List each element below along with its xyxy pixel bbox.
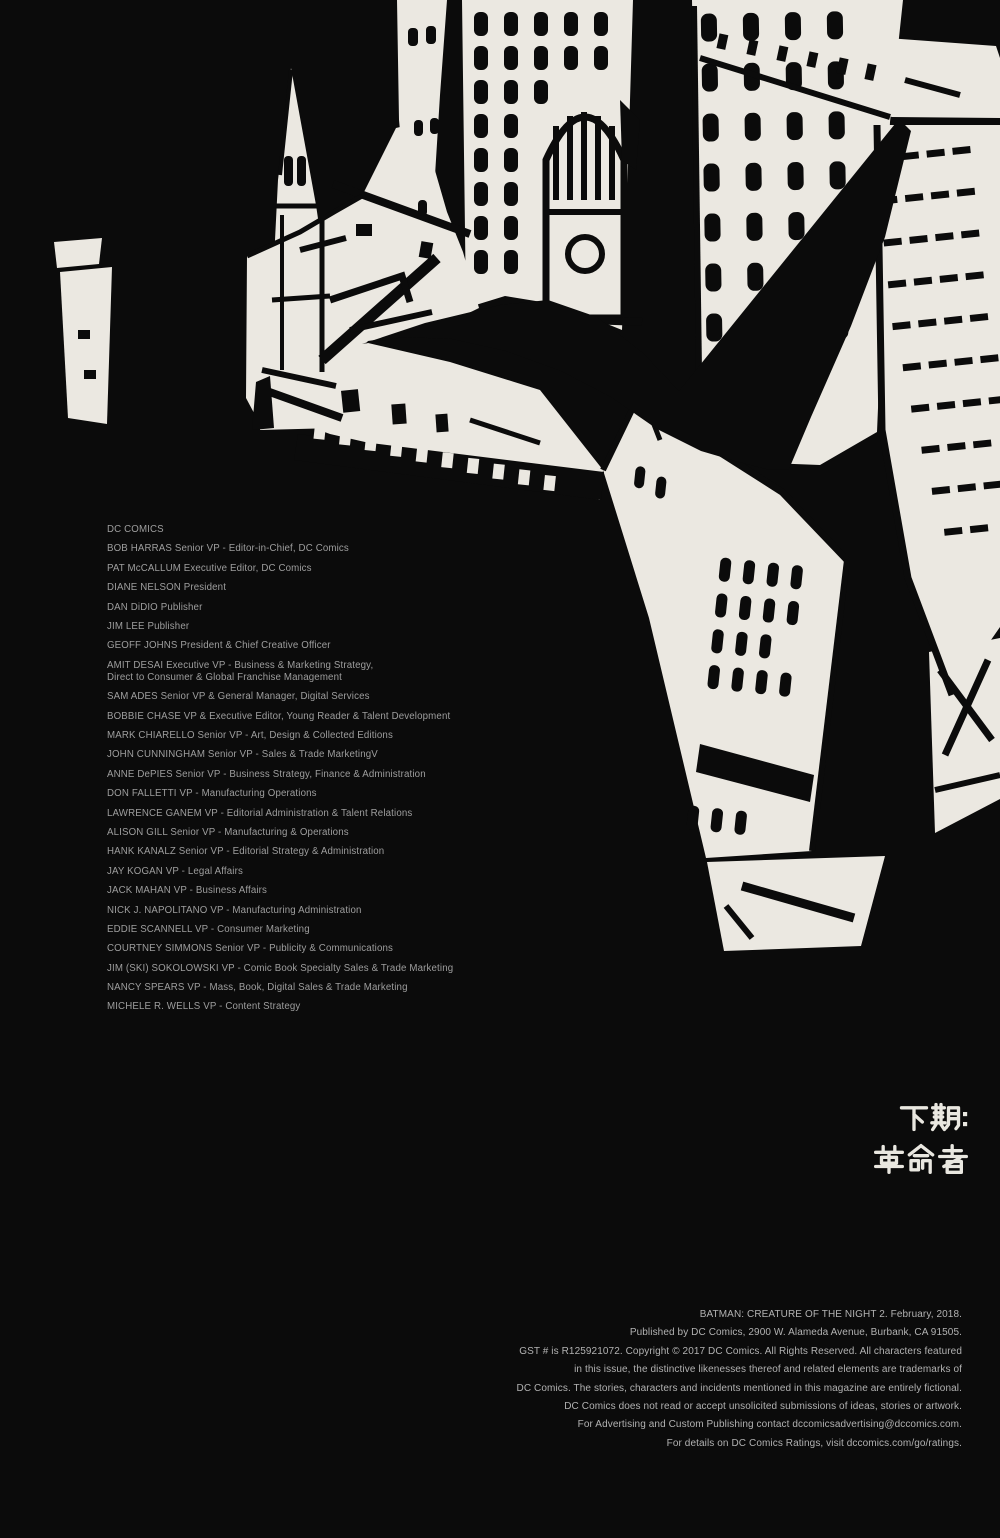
- cjk-char-xia: [901, 1108, 926, 1130]
- credit-line: BOBBIE CHASE VP & Executive Editor, Youn…: [107, 711, 587, 723]
- legal-line: BATMAN: CREATURE OF THE NIGHT 2. Februar…: [402, 1306, 962, 1324]
- credit-line: NICK J. NAPOLITANO VP - Manufacturing Ad…: [107, 905, 587, 917]
- credits-block: DC COMICSBOB HARRAS Senior VP - Editor-i…: [107, 524, 587, 1021]
- credit-line: ALISON GILL Senior VP - Manufacturing & …: [107, 827, 587, 839]
- belfry-window: [284, 156, 293, 186]
- credit-line: EDDIE SCANNELL VP - Consumer Marketing: [107, 924, 587, 936]
- legal-block: BATMAN: CREATURE OF THE NIGHT 2. Februar…: [402, 1306, 962, 1453]
- cjk-char-ge: [876, 1146, 903, 1172]
- credit-line: HANK KANALZ Senior VP - Editorial Strate…: [107, 846, 587, 858]
- credit-line: NANCY SPEARS VP - Mass, Book, Digital Sa…: [107, 982, 587, 994]
- cjk-char-qi: [932, 1104, 959, 1129]
- credit-line: JIM LEE Publisher: [107, 621, 587, 633]
- legal-line: DC Comics does not read or accept unsoli…: [402, 1398, 962, 1416]
- legal-line: GST # is R125921072. Copyright © 2017 DC…: [402, 1343, 962, 1361]
- credit-line: MARK CHIARELLO Senior VP - Art, Design &…: [107, 730, 587, 742]
- credit-line: BOB HARRAS Senior VP - Editor-in-Chief, …: [107, 543, 587, 555]
- cjk-char-zhe: [940, 1146, 967, 1173]
- credit-line: PAT McCALLUM Executive Editor, DC Comics: [107, 563, 587, 575]
- cjk-colon: [963, 1112, 967, 1126]
- comic-credits-page: DC COMICSBOB HARRAS Senior VP - Editor-i…: [0, 0, 1000, 1538]
- credit-line: JOHN CUNNINGHAM Senior VP - Sales & Trad…: [107, 749, 587, 761]
- credit-line: DON FALLETTI VP - Manufacturing Operatio…: [107, 788, 587, 800]
- credit-line: JACK MAHAN VP - Business Affairs: [107, 885, 587, 897]
- left-fragment-1: [54, 238, 102, 268]
- credit-line: MICHELE R. WELLS VP - Content Strategy: [107, 1001, 587, 1013]
- credit-line: DC COMICS: [107, 524, 587, 536]
- credit-line: JAY KOGAN VP - Legal Affairs: [107, 866, 587, 878]
- credit-line: DIANE NELSON President: [107, 582, 587, 594]
- legal-line: DC Comics. The stories, characters and i…: [402, 1380, 962, 1398]
- credit-line: SAM ADES Senior VP & General Manager, Di…: [107, 691, 587, 703]
- credit-line: AMIT DESAI Executive VP - Business & Mar…: [107, 660, 587, 684]
- legal-line: For Advertising and Custom Publishing co…: [402, 1416, 962, 1434]
- credit-line: JIM (SKI) SOKOLOWSKI VP - Comic Book Spe…: [107, 963, 587, 975]
- next-issue-glyphs: [860, 1098, 980, 1188]
- credit-line: DAN DiDIO Publisher: [107, 602, 587, 614]
- left-fragment-2: [60, 267, 112, 424]
- credit-line: GEOFF JOHNS President & Chief Creative O…: [107, 640, 587, 652]
- cjk-char-ming: [909, 1146, 932, 1173]
- credit-line: COURTNEY SIMMONS Senior VP - Publicity &…: [107, 943, 587, 955]
- belfry-window: [297, 156, 306, 186]
- legal-line: in this issue, the distinctive likenesse…: [402, 1361, 962, 1379]
- next-issue-block: [860, 1098, 980, 1188]
- legal-line: Published by DC Comics, 2900 W. Alameda …: [402, 1324, 962, 1342]
- far-right-building: [875, 125, 1000, 696]
- credit-line: ANNE DePIES Senior VP - Business Strateg…: [107, 769, 587, 781]
- credit-line: LAWRENCE GANEM VP - Editorial Administra…: [107, 808, 587, 820]
- legal-line: For details on DC Comics Ratings, visit …: [402, 1435, 962, 1453]
